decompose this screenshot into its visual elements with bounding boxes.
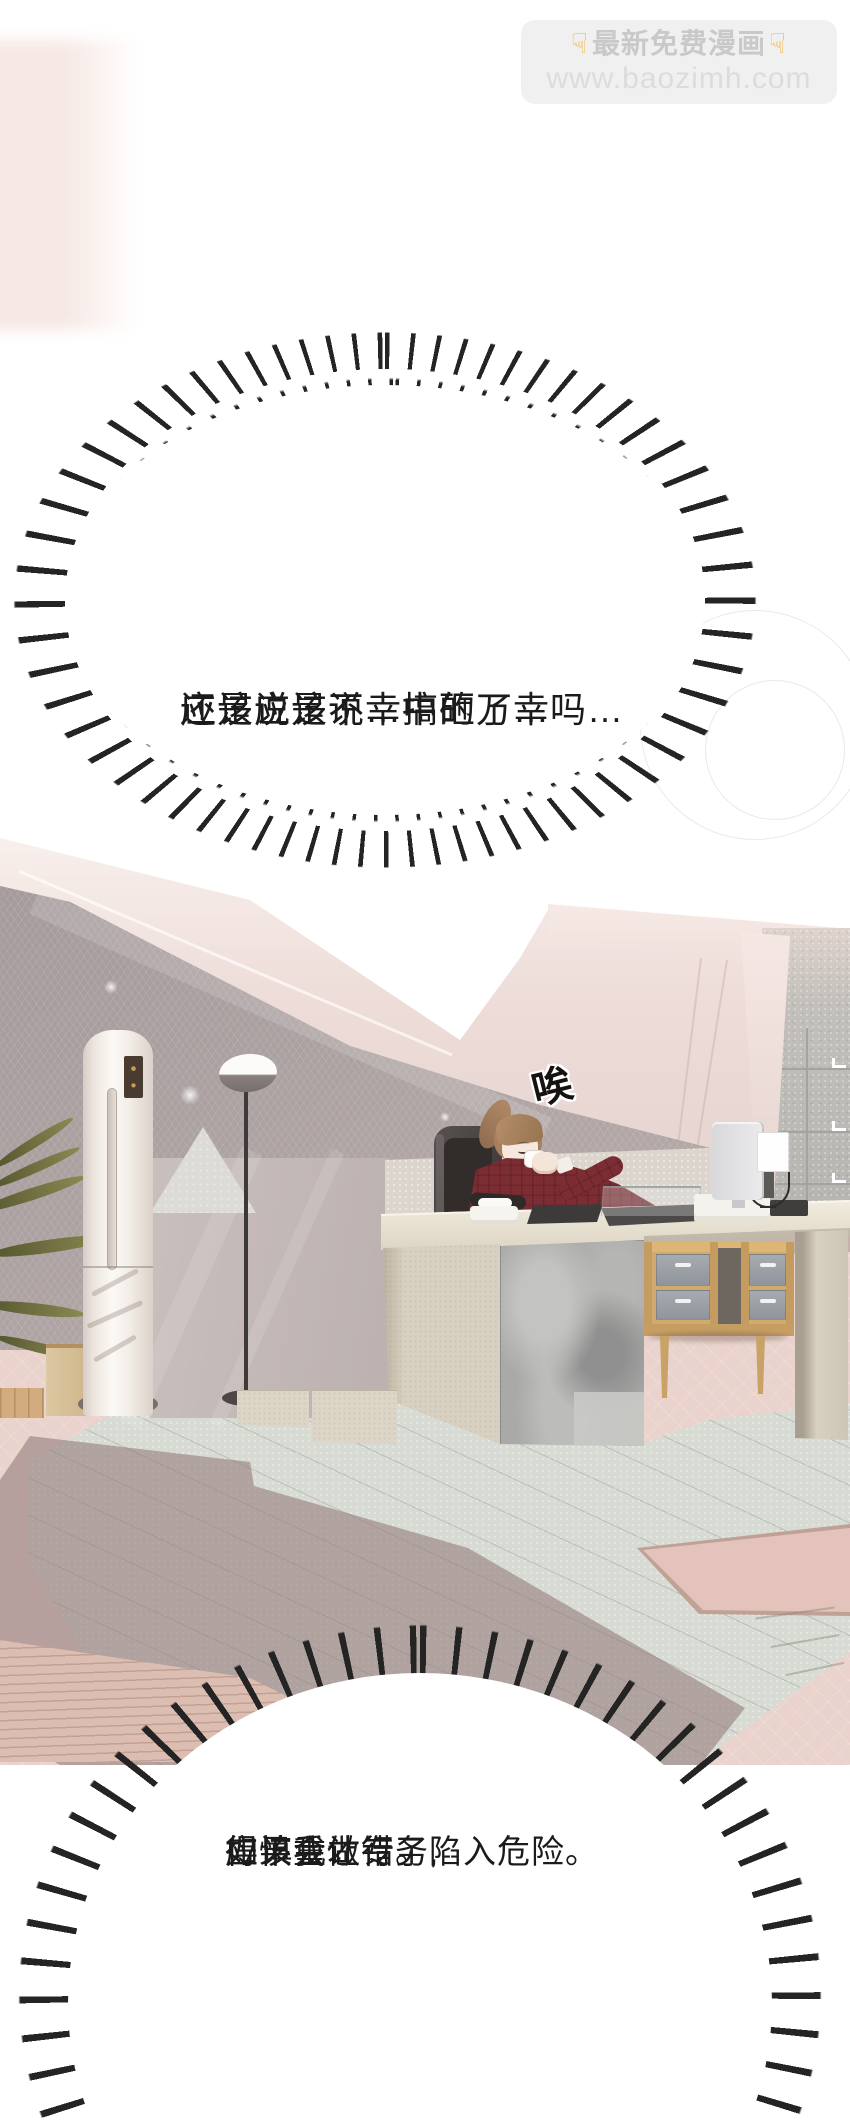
cabinet-stile — [710, 1242, 718, 1336]
comic-page: ☟最新免费漫画☟ www.baozimh.com — [0, 0, 850, 2125]
leaf-shadow — [91, 1268, 139, 1297]
bokeh-dot — [440, 1112, 450, 1122]
chair-highlight — [436, 1134, 444, 1218]
cabinet-stile — [786, 1242, 794, 1336]
wood-floor-strip — [0, 1388, 44, 1418]
drawer-handle — [760, 1263, 776, 1267]
ac-vent-slot — [107, 1088, 117, 1270]
cabinet-stile — [644, 1242, 652, 1336]
thought-bubble — [65, 385, 705, 815]
panel-bracket — [832, 1173, 846, 1183]
leaf-shadow — [93, 1334, 137, 1362]
thought-line: 得慎重才行。 — [225, 1827, 429, 1877]
thought-line: 还是应该说…搞砸了… — [180, 686, 550, 733]
bokeh-dot — [180, 1085, 200, 1105]
drawer — [656, 1254, 710, 1286]
bokeh-dot — [104, 980, 118, 994]
cabinet-shadow — [648, 1332, 788, 1342]
desk-marble-panel — [500, 1240, 646, 1448]
drawer-handle — [675, 1299, 691, 1303]
drawer — [656, 1290, 710, 1320]
tea-set — [470, 1206, 518, 1224]
ac-control-panel — [124, 1056, 143, 1098]
woman-hands — [532, 1152, 558, 1174]
panel-bracket — [832, 1058, 846, 1068]
woman-eyebrow — [517, 1142, 529, 1146]
leaf-shadow — [87, 1300, 144, 1329]
cabinet-leg — [756, 1336, 765, 1394]
acrylic-divider — [601, 1186, 701, 1216]
ac-seam — [83, 1266, 153, 1268]
cabinet-leg — [660, 1336, 669, 1398]
cabinet-stile — [741, 1242, 749, 1336]
drawer-handle — [675, 1263, 691, 1267]
ac-tower — [83, 1030, 153, 1416]
keyboard — [527, 1204, 603, 1224]
drawer-handle — [760, 1299, 776, 1303]
drawer — [749, 1290, 786, 1320]
marble-light-patch — [574, 1392, 644, 1446]
panel-bracket — [832, 1121, 846, 1131]
floor-lamp-pole — [244, 1086, 248, 1398]
panel-seam — [806, 1028, 808, 1218]
desk-plinth-foot — [237, 1388, 309, 1430]
cabinet-open-shelf — [718, 1248, 741, 1328]
desk-plinth-foot — [312, 1388, 397, 1446]
desk-right-leg — [795, 1228, 850, 1442]
wooden-cabinet — [644, 1240, 794, 1400]
white-panel — [757, 1132, 789, 1172]
drawer — [749, 1254, 786, 1286]
